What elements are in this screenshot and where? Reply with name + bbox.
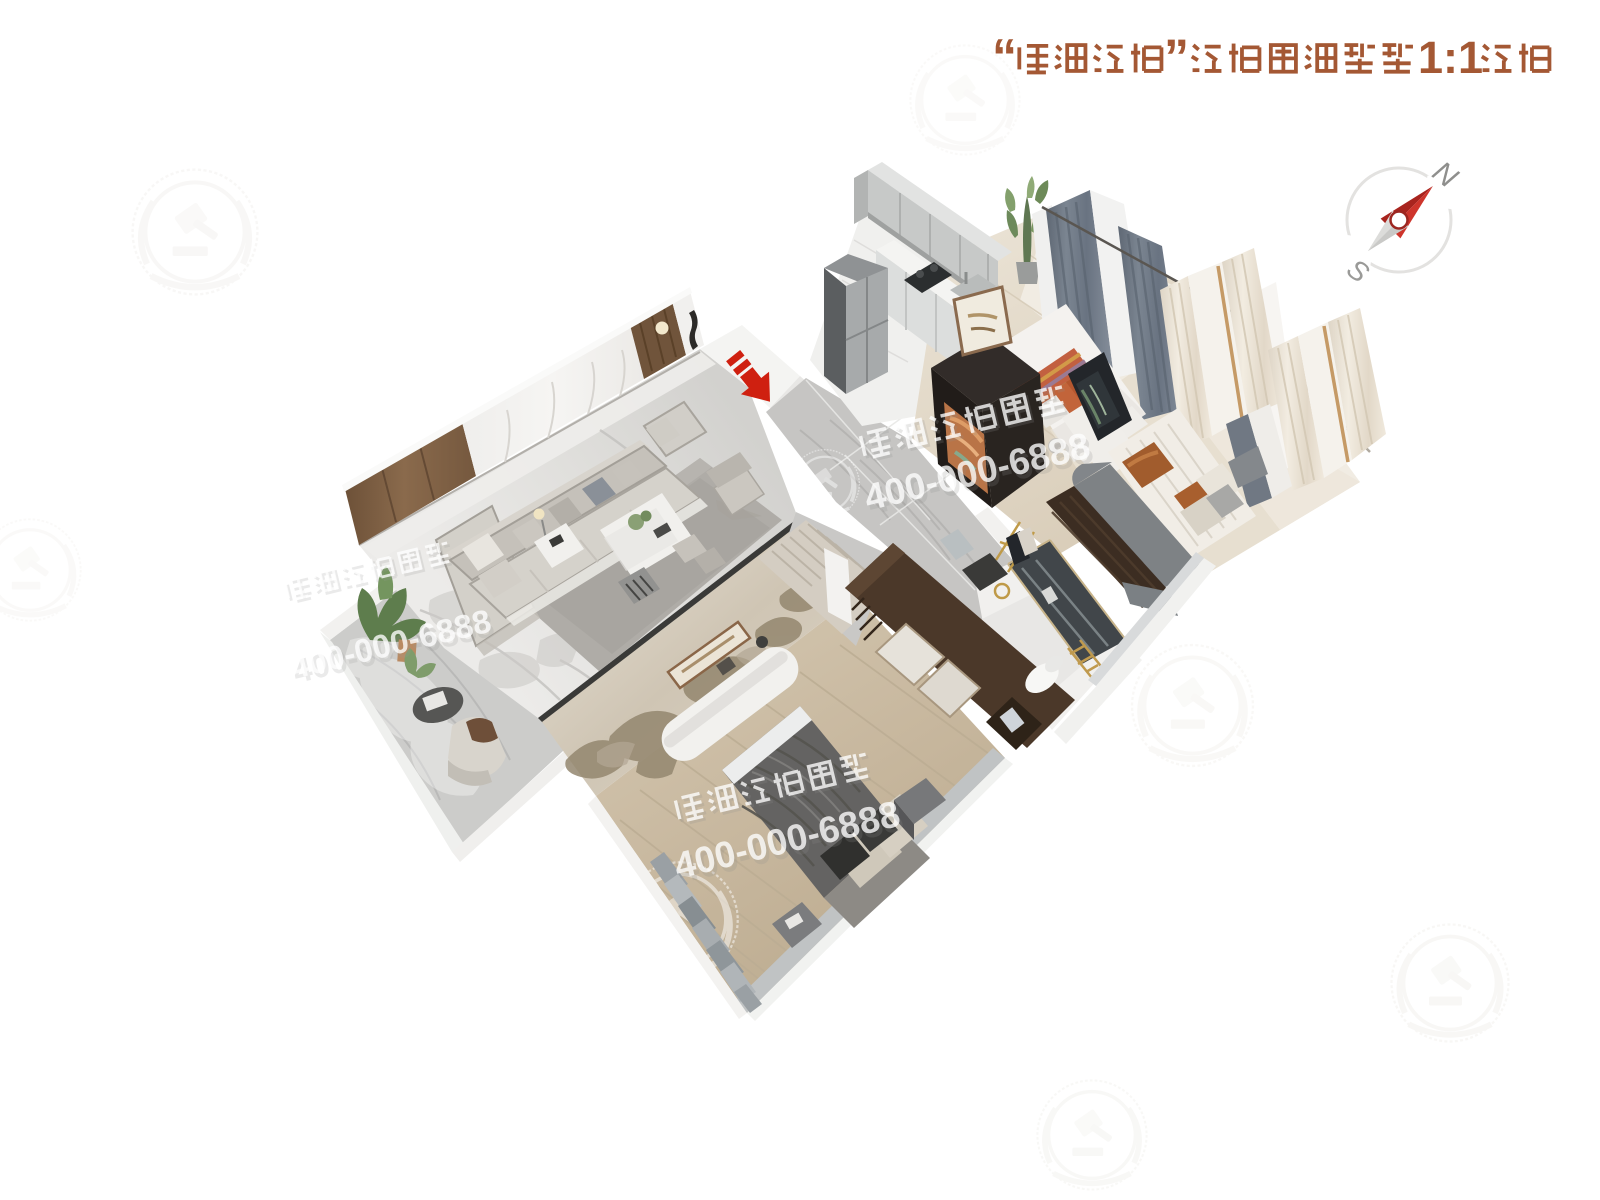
svg-text:”: ” <box>1164 29 1189 85</box>
svg-text:“: “ <box>992 29 1017 85</box>
svg-text:1:1: 1:1 <box>1418 32 1483 83</box>
